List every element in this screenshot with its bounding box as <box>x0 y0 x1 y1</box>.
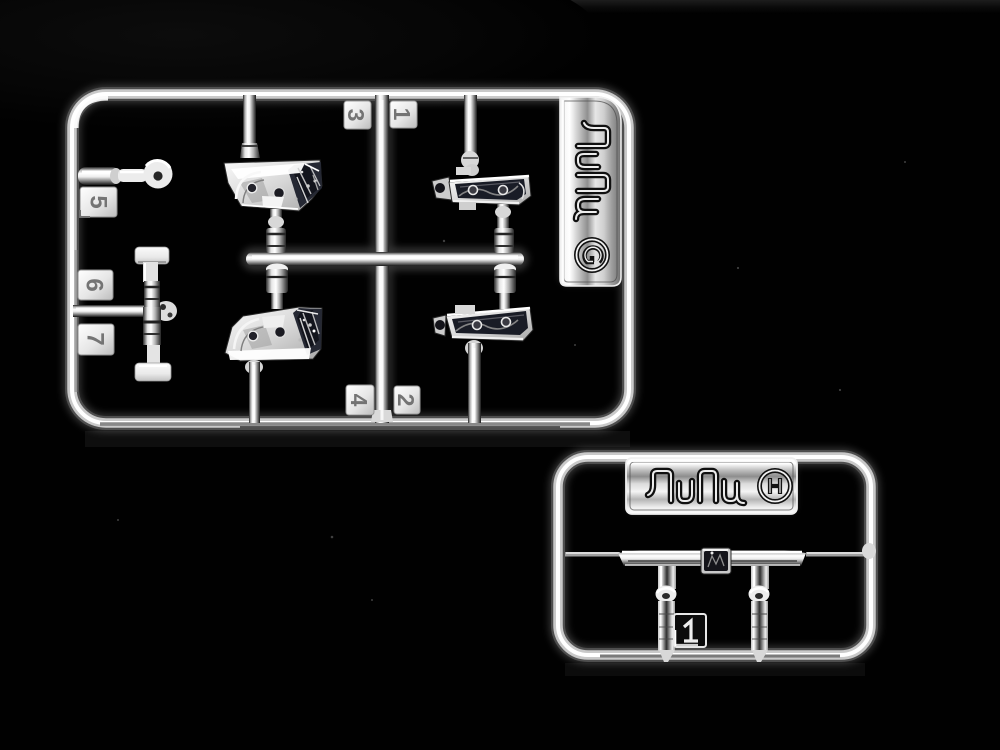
svg-text:6: 6 <box>81 278 108 291</box>
svg-text:7: 7 <box>82 332 109 345</box>
svg-text:5: 5 <box>85 195 112 208</box>
svg-text:1: 1 <box>389 108 415 121</box>
svg-text:3: 3 <box>343 109 369 122</box>
svg-text:4: 4 <box>346 394 372 407</box>
svg-text:2: 2 <box>393 394 419 407</box>
